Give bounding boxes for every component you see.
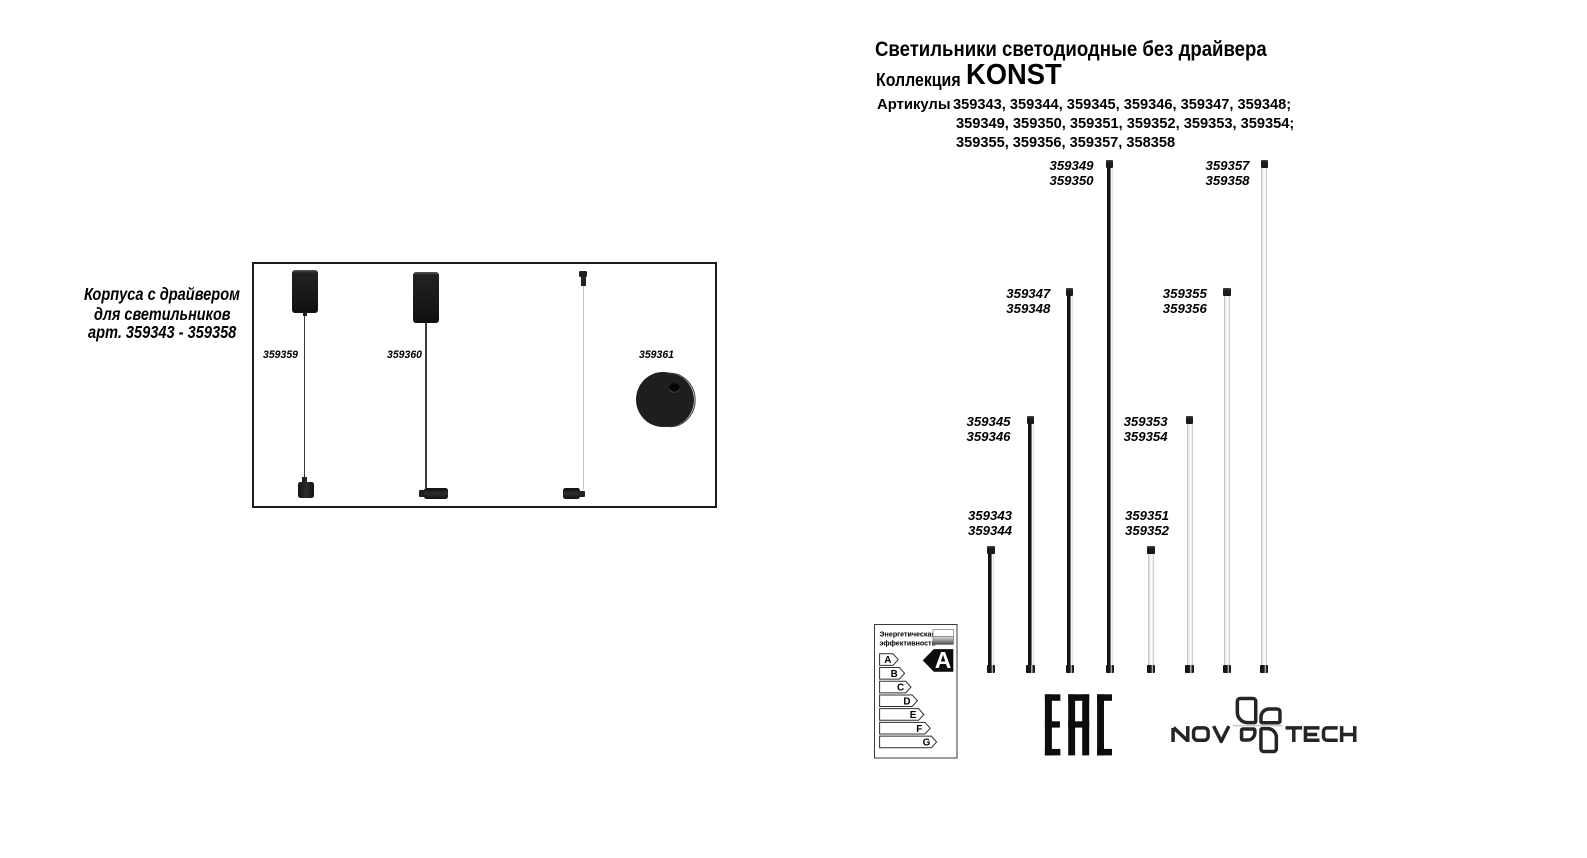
svg-text:B: B: [891, 669, 898, 680]
svg-text:G: G: [923, 738, 931, 749]
svg-text:A: A: [884, 655, 891, 666]
svg-text:D: D: [903, 696, 910, 707]
svg-text:эффективность: эффективность: [880, 638, 937, 647]
svg-text:A: A: [935, 647, 952, 673]
svg-text:C: C: [897, 683, 904, 694]
svg-text:F: F: [916, 724, 922, 735]
svg-text:E: E: [910, 710, 917, 721]
